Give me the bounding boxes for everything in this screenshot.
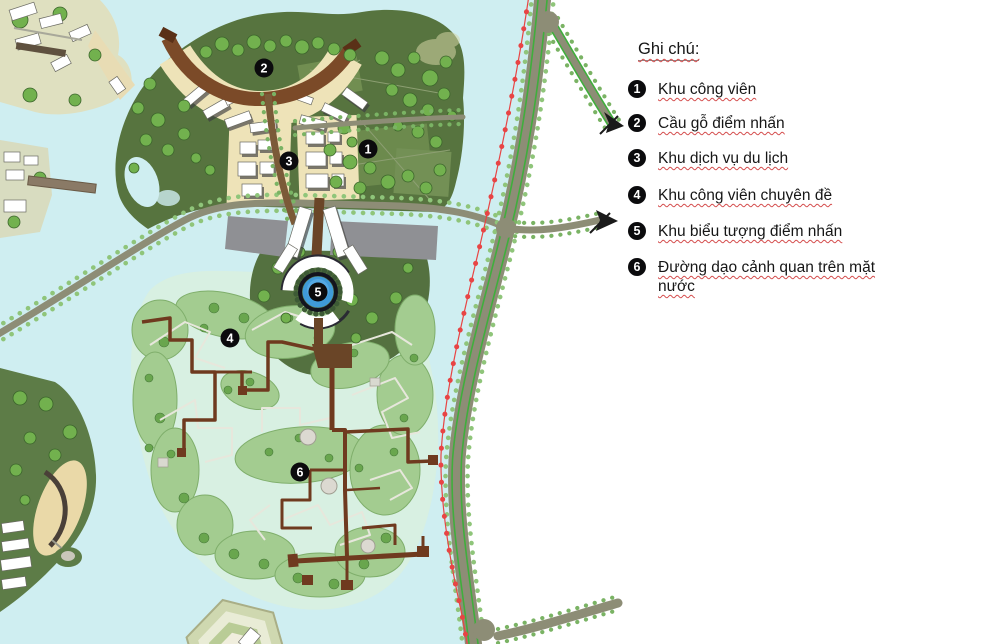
map-marker-1: 1 — [359, 140, 378, 159]
legend-badge-2: 2 — [628, 114, 646, 132]
legend-badge-5: 5 — [628, 222, 646, 240]
legend-item-5: 5 Khu biểu tượng điểm nhấn — [628, 222, 928, 241]
legend-badge-6: 6 — [628, 258, 646, 276]
masterplan-page: 123456 Ghi chú: 1 Khu công viên 2 Cầu gỗ… — [0, 0, 989, 644]
legend-badge-1: 1 — [628, 80, 646, 98]
map-marker-5: 5 — [309, 283, 328, 302]
legend-label-6: Đường dạo cảnh quan trên mặt nước — [658, 258, 903, 296]
legend-item-2: 2 Cầu gỗ điểm nhấn — [628, 114, 928, 133]
legend-label-1: Khu công viên — [658, 80, 756, 99]
legend-panel: Ghi chú: 1 Khu công viên 2 Cầu gỗ điểm n… — [628, 0, 958, 330]
map-marker-3: 3 — [280, 152, 299, 171]
legend-item-6: 6 Đường dạo cảnh quan trên mặt nước — [628, 258, 928, 296]
legend-item-4: 4 Khu công viên chuyên đề — [628, 186, 928, 205]
map-marker-4: 4 — [221, 329, 240, 348]
legend-badge-3: 3 — [628, 149, 646, 167]
legend-label-4: Khu công viên chuyên đề — [658, 186, 832, 205]
legend-label-2: Cầu gỗ điểm nhấn — [658, 114, 785, 133]
legend-title: Ghi chú: — [638, 40, 699, 61]
map-marker-6: 6 — [291, 463, 310, 482]
legend-label-5: Khu biểu tượng điểm nhấn — [658, 222, 842, 241]
map-marker-2: 2 — [255, 59, 274, 78]
legend-item-3: 3 Khu dịch vụ du lịch — [628, 149, 928, 168]
legend-item-1: 1 Khu công viên — [628, 80, 928, 99]
legend-badge-4: 4 — [628, 186, 646, 204]
legend-label-3: Khu dịch vụ du lịch — [658, 149, 788, 168]
